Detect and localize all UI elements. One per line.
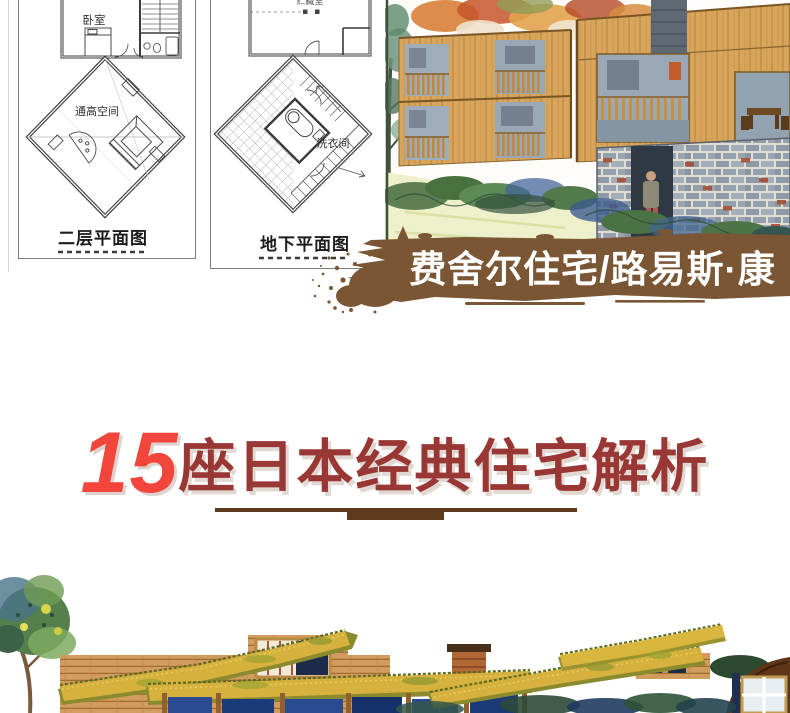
void-space-label: 通高空间 [75,104,119,118]
floor-plan-card-upper: 卧室 通高空间 二层平面图 [18,0,196,259]
book-detail-page: 卧室 通高空间 二层平面图 贮藏室 [0,0,790,713]
grass-roof-house-illustration [0,555,790,713]
fisher-house-illustration [385,0,790,256]
sofa-cluster [109,116,163,170]
piano-symbol [69,125,102,163]
headline-underline-center [347,508,444,520]
banner-title: 费舍尔住宅/路易斯·康 [395,240,790,300]
stairs-hatch [142,0,178,33]
bedroom-label: 卧室 [83,13,106,27]
plan-caption-second-floor: 二层平面图 [58,229,148,248]
right-building-volume [577,0,790,162]
storage-label-clipped: 贮藏室 [296,0,323,6]
left-building-volume [399,30,571,166]
laundry-label: 洗衣间 [317,136,350,150]
diamond-room [28,58,183,216]
left-frame-line [8,0,9,272]
second-floor-plan-drawing: 卧室 通高空间 二层平面图 [19,0,195,258]
headline-text: 座日本经典住宅解析 [178,435,709,499]
bed-symbol [85,28,111,56]
headline: 15座日本经典住宅解析 [0,414,790,513]
headline-number: 15 [81,415,179,511]
column-symbols [250,10,320,15]
